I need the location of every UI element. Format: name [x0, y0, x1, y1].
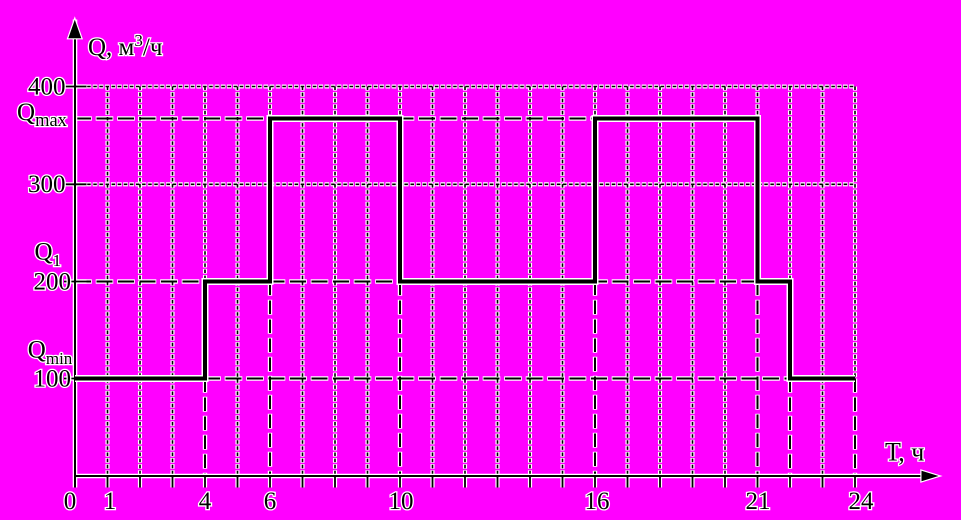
svg-text:Q1: Q1 [35, 239, 62, 271]
svg-text:300: 300 [28, 171, 66, 198]
svg-text:200: 200 [34, 269, 72, 296]
svg-text:4: 4 [199, 488, 212, 515]
svg-text:10: 10 [389, 488, 414, 515]
svg-text:Т, ч: Т, ч [885, 438, 924, 467]
svg-text:21: 21 [746, 488, 771, 515]
svg-text:100: 100 [34, 366, 72, 393]
svg-text:Qmax: Qmax [17, 99, 68, 131]
svg-text:Q, м3/ч: Q, м3/ч [88, 31, 162, 61]
svg-text:0: 0 [64, 488, 77, 515]
svg-text:400: 400 [28, 74, 66, 101]
svg-text:6: 6 [264, 488, 277, 515]
svg-text:16: 16 [585, 488, 610, 515]
svg-text:1: 1 [104, 488, 117, 515]
svg-text:24: 24 [849, 488, 875, 515]
svg-text:Qmin: Qmin [28, 337, 73, 369]
